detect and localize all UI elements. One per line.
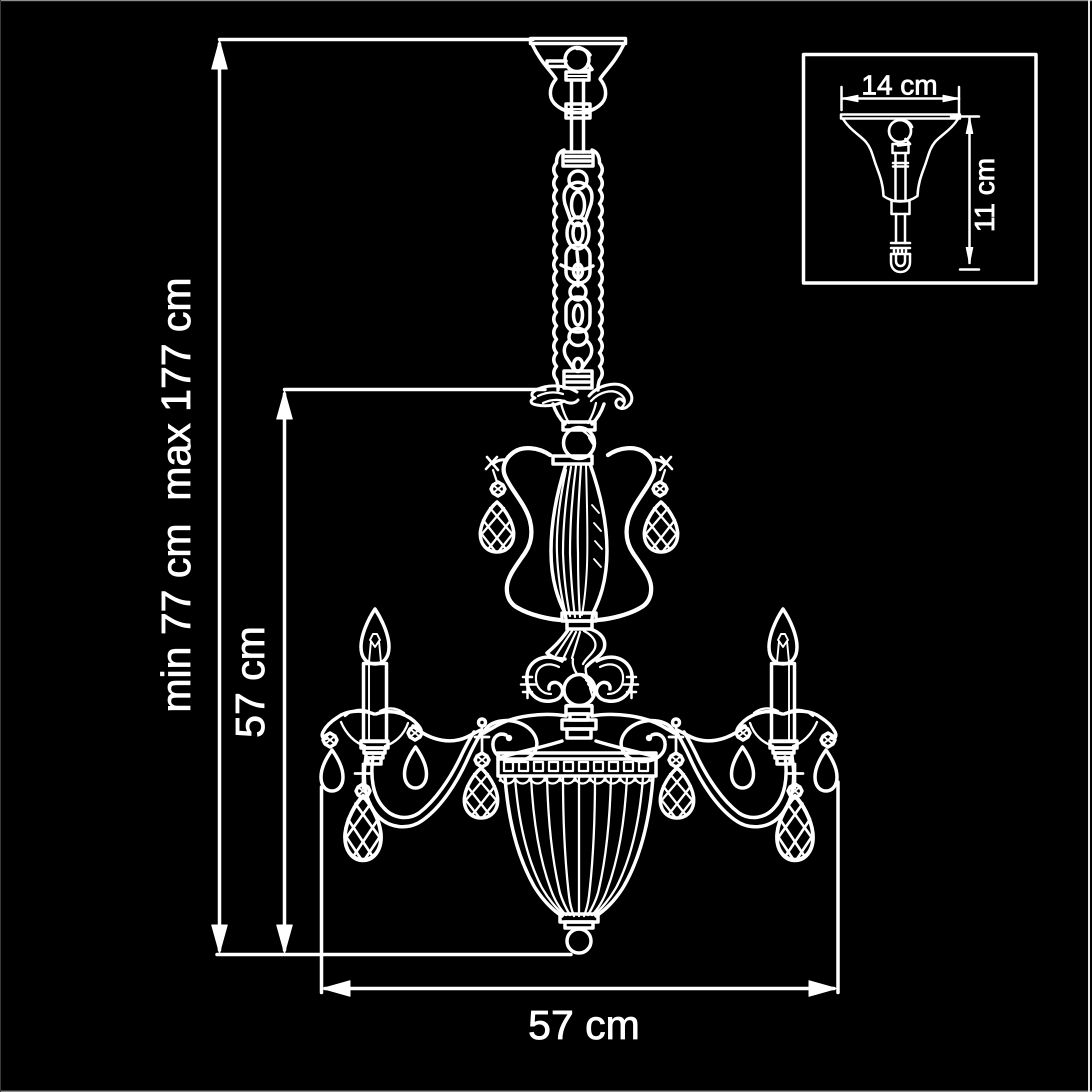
svg-text:11 cm: 11 cm: [969, 158, 1000, 232]
svg-text:14 cm: 14 cm: [861, 70, 937, 101]
svg-text:57 cm: 57 cm: [528, 1002, 640, 1048]
svg-text:57 cm: 57 cm: [227, 626, 273, 738]
svg-text:min 77 cm max 177 cm: min 77 cm max 177 cm: [153, 277, 199, 712]
